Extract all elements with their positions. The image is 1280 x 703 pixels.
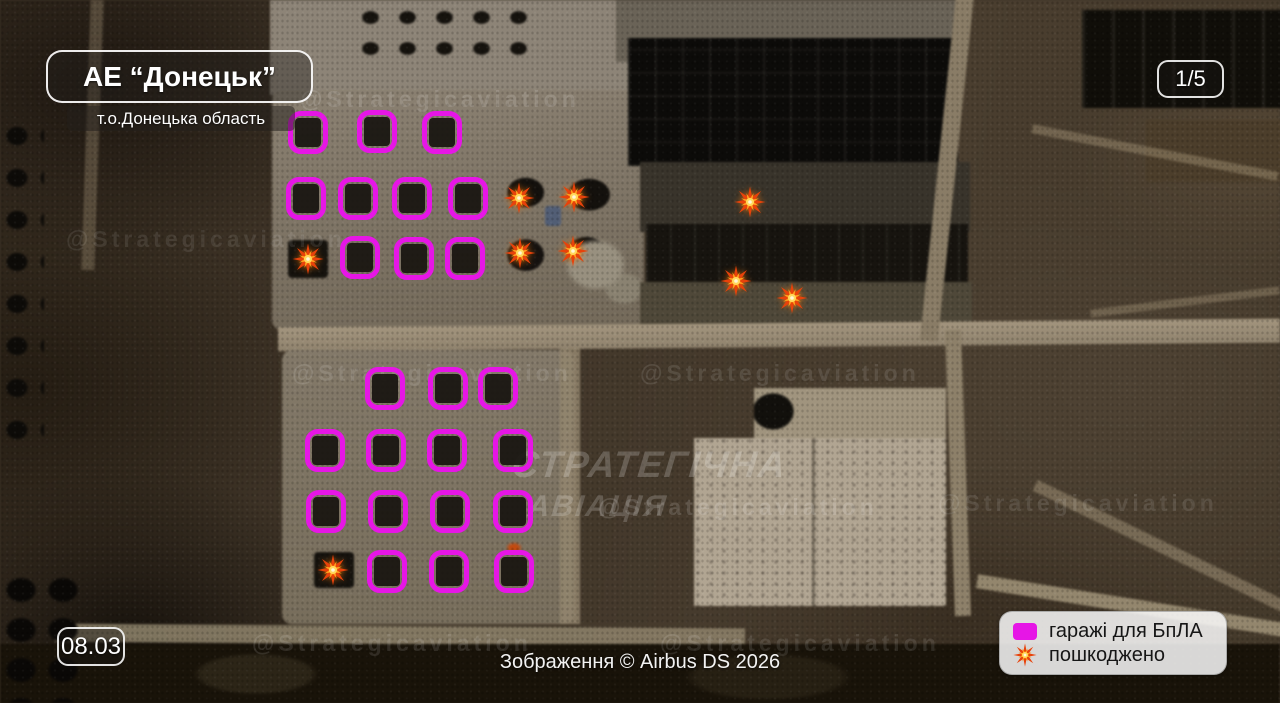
damage-star-icon bbox=[1013, 643, 1037, 667]
legend-row-garages: гаражі для БпЛА bbox=[1013, 619, 1226, 643]
title-box: АЕ “Донецьк” bbox=[46, 50, 313, 103]
legend-row-damaged: пошкоджено bbox=[1013, 643, 1226, 667]
legend-damaged-label: пошкоджено bbox=[1049, 644, 1165, 667]
imagery-attribution: Зображення © Airbus DS 2026 bbox=[500, 651, 780, 674]
garage-swatch-icon bbox=[1013, 623, 1037, 640]
page-indicator-text: 1/5 bbox=[1175, 66, 1206, 92]
label-layer: АЕ “Донецьк” т.о.Донецька область 1/5 08… bbox=[0, 0, 1280, 703]
legend: гаражі для БпЛА пошкоджено bbox=[999, 611, 1227, 675]
region-subtitle: т.о.Донецька область bbox=[97, 109, 265, 129]
page-title: АЕ “Донецьк” bbox=[83, 61, 276, 93]
legend-garages-label: гаражі для БпЛА bbox=[1049, 620, 1203, 643]
subtitle-bar: т.о.Донецька область bbox=[67, 106, 295, 131]
date-badge: 08.03 bbox=[57, 627, 125, 666]
date-text: 08.03 bbox=[61, 633, 121, 661]
satellite-annotation-slide: @Strategicaviation @Strategicaviation @S… bbox=[0, 0, 1280, 703]
page-indicator: 1/5 bbox=[1157, 60, 1224, 98]
